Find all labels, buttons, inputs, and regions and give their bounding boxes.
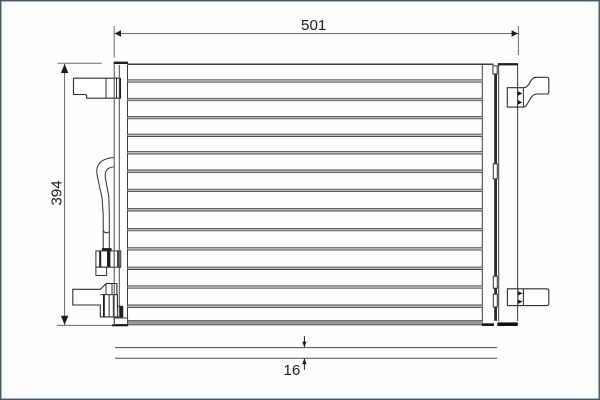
svg-text:16: 16 [283,362,300,379]
svg-text:394: 394 [49,180,66,205]
svg-text:501: 501 [301,17,326,34]
